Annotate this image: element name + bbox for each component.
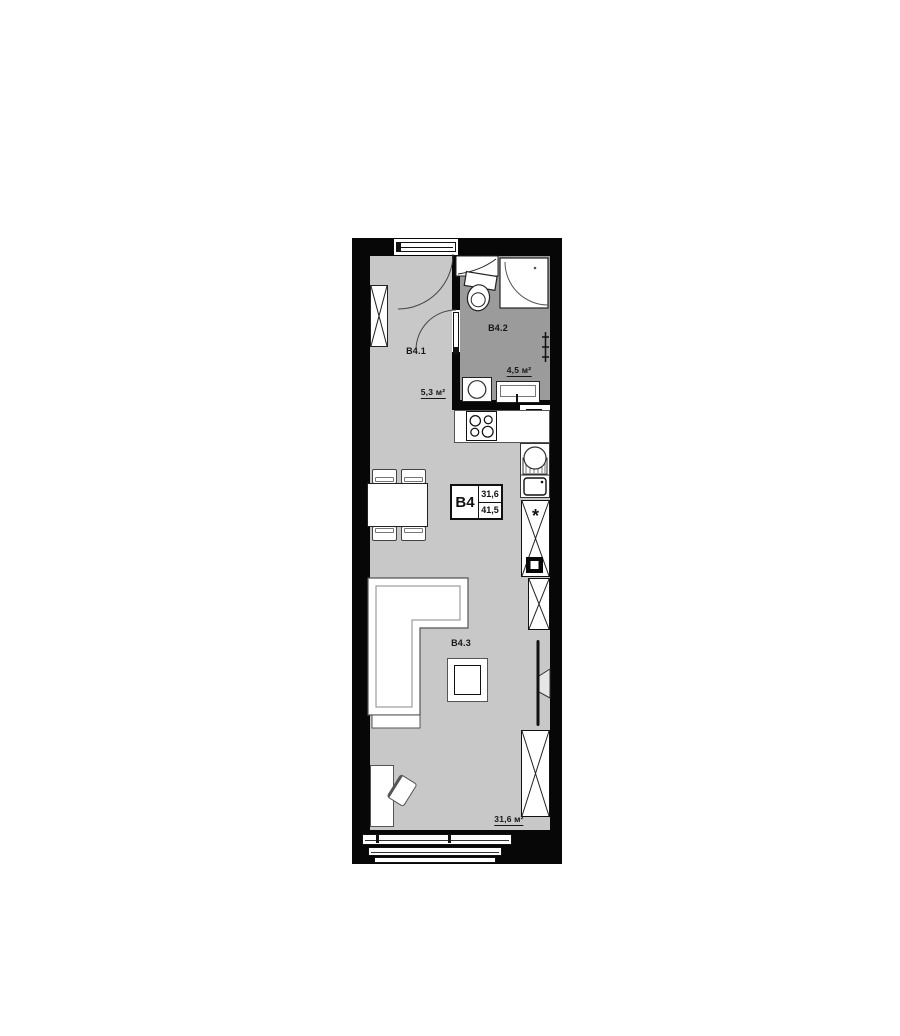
towel-rail xyxy=(542,332,549,362)
tv xyxy=(537,640,551,726)
room-label-living: B4.3 xyxy=(451,638,471,648)
unit-total-area: 41,5 xyxy=(479,503,501,519)
plan-overlay xyxy=(352,238,562,864)
toilet xyxy=(461,272,497,313)
unit-living-area: 31,6 xyxy=(479,486,501,503)
unit-code: B4 xyxy=(452,486,479,518)
floor-plan: * xyxy=(352,238,562,864)
shower xyxy=(500,258,548,308)
room-area-bathroom: 4,5 м² xyxy=(507,365,532,377)
unit-info-box: B4 31,6 41,5 xyxy=(450,484,503,520)
room-label-hall: B4.1 xyxy=(406,346,426,356)
bathroom-door-swing-arc xyxy=(416,310,456,350)
entrance-door-swing-arc xyxy=(398,254,453,309)
sofa xyxy=(368,578,468,728)
room-area-living: 31,6 м² xyxy=(494,814,523,826)
room-label-bathroom: B4.2 xyxy=(488,323,508,333)
shower-drain-icon xyxy=(534,267,537,270)
room-area-hall: 5,3 м² xyxy=(421,387,446,399)
tv-screen-icon xyxy=(537,640,540,726)
page-background: * xyxy=(0,0,900,1036)
